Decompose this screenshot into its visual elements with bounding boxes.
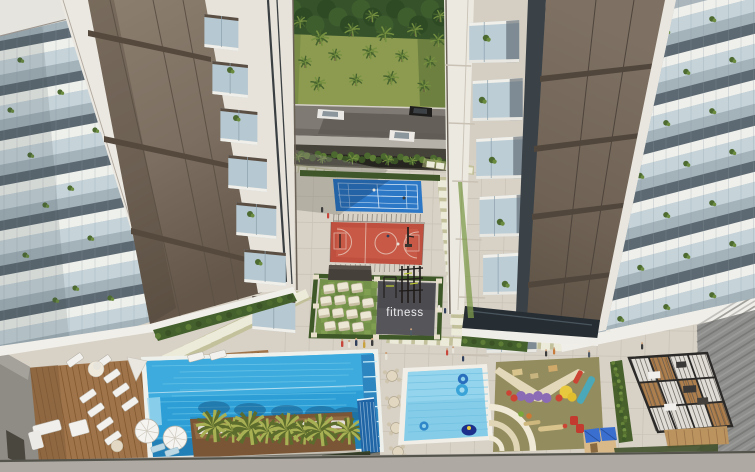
svg-text:fitness: fitness bbox=[386, 307, 423, 319]
